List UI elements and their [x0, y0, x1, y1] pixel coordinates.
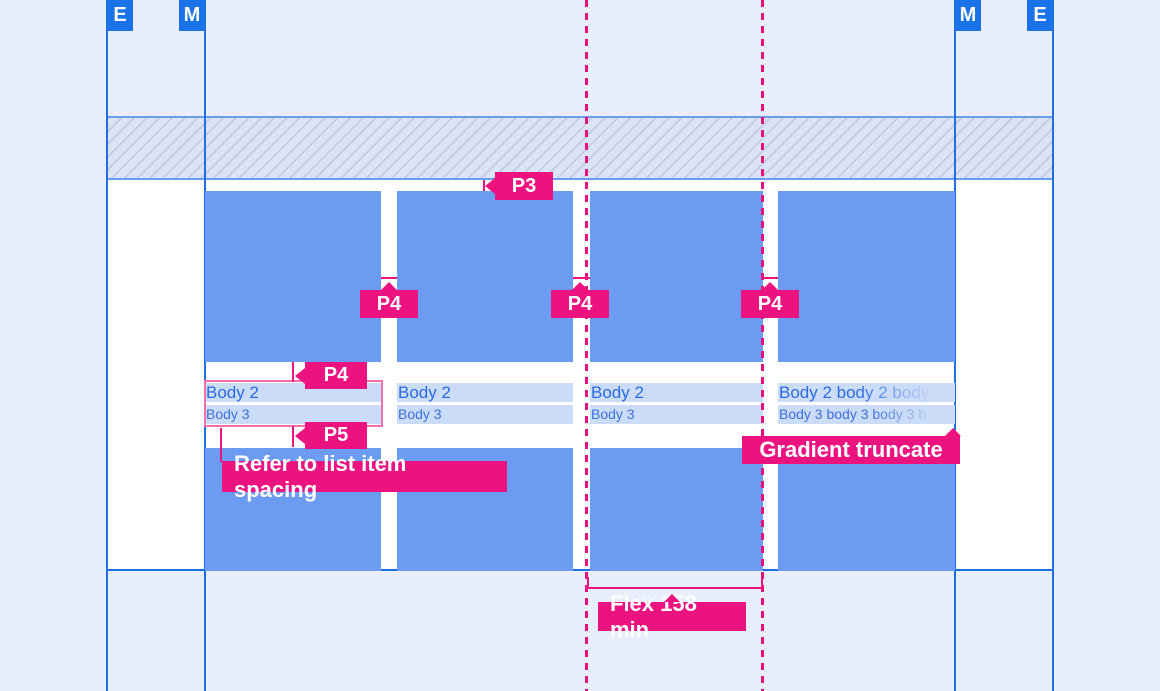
card-subtitle-highlight: Body 3	[590, 405, 763, 424]
card-image-tile	[778, 191, 955, 362]
arrow-left-icon	[485, 178, 495, 194]
gradient-truncate-text: Gradient truncate	[759, 437, 942, 463]
card-title-highlight: Body 2 body 2 body	[778, 383, 955, 402]
card-subtitle: Body 3	[590, 406, 635, 422]
card-subtitle-highlight: Body 3 body 3 body 3 b	[778, 405, 955, 424]
spacing-label-p5: P5	[305, 422, 367, 449]
measurement-tick	[292, 426, 294, 447]
design-spec-canvas: E M M E Body 2 Body 3 Body 2 Body 3 Body…	[0, 0, 1160, 691]
card-subtitle-highlight: Body 3	[397, 405, 573, 424]
arrow-up-icon	[572, 282, 588, 290]
arrow-up-icon	[945, 428, 961, 436]
arrow-up-icon	[381, 282, 397, 290]
refer-note-text: Refer to list item spacing	[234, 451, 495, 503]
card-image-tile	[778, 448, 955, 571]
edge-guideline-right	[1052, 0, 1054, 691]
gradient-fade-overlay	[855, 383, 955, 402]
gutter-label-text: P4	[568, 293, 592, 316]
gutter-label-p4: P4	[551, 290, 609, 318]
edge-label-left: E	[107, 0, 133, 31]
gutter-label-text: P4	[377, 293, 401, 316]
padding-label-text: P3	[512, 175, 536, 198]
arrow-left-icon	[295, 368, 305, 384]
card-image-tile	[397, 191, 573, 362]
spacing-label-p4: P4	[305, 362, 367, 389]
gutter-label-p4: P4	[741, 290, 799, 318]
margin-label-right: M	[955, 0, 981, 31]
card-image-tile	[205, 191, 381, 362]
gutter-label-p4: P4	[360, 290, 418, 318]
gradient-fade-overlay	[870, 405, 955, 424]
edge-label-right: E	[1027, 0, 1053, 31]
edge-guideline-left	[106, 0, 108, 691]
padding-label-p3: P3	[495, 172, 553, 200]
margin-label-left: M	[179, 0, 205, 31]
flex-measure-bracket-tick	[587, 577, 589, 589]
card-image-tile	[590, 448, 763, 571]
card-title-highlight: Body 2	[397, 383, 573, 402]
flex-min-label: Flex 158 min	[598, 602, 746, 631]
card-title-highlight: Body 2	[590, 383, 763, 402]
card-title: Body 2	[397, 383, 451, 402]
measurement-tick	[381, 277, 397, 279]
refer-note-label: Refer to list item spacing	[222, 461, 507, 492]
arrow-up-icon	[762, 282, 778, 290]
arrow-up-icon	[664, 594, 680, 602]
gradient-truncate-label: Gradient truncate	[742, 436, 960, 464]
spacing-label-text: P4	[324, 364, 348, 387]
measurement-tick	[292, 362, 294, 382]
gutter-label-text: P4	[758, 293, 782, 316]
card-subtitle: Body 3	[397, 406, 442, 422]
card-title: Body 2	[590, 383, 644, 402]
card-image-tile	[590, 191, 763, 362]
flex-measure-bracket	[587, 587, 763, 589]
measurement-tick	[763, 277, 778, 279]
measurement-tick	[573, 277, 590, 279]
arrow-left-icon	[295, 428, 305, 444]
app-bar-hatch-band	[107, 116, 1053, 180]
flex-measure-bracket-tick	[761, 577, 763, 589]
spacing-label-text: P5	[324, 424, 348, 447]
leader-line	[220, 428, 222, 462]
